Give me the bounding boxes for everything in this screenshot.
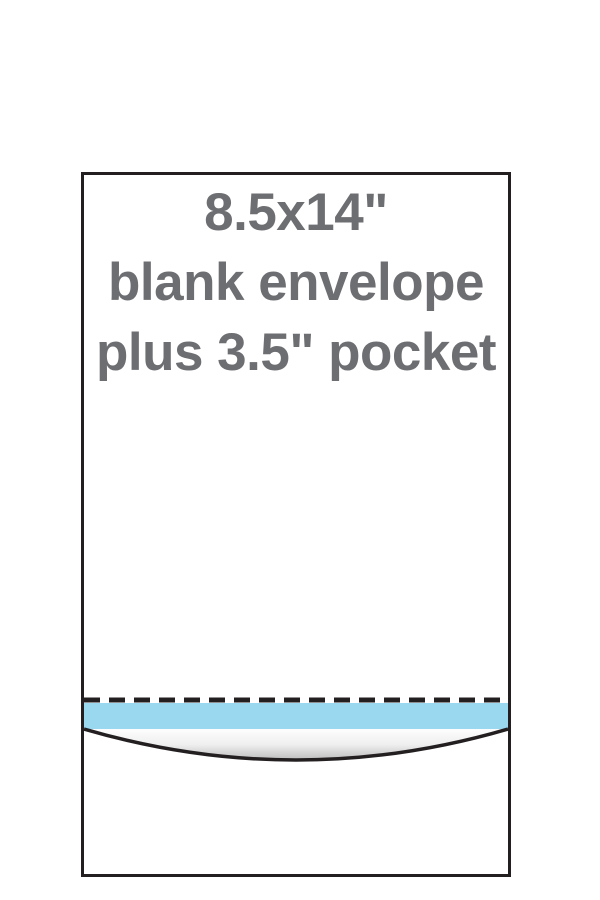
envelope-label: 8.5x14" blank envelope plus 3.5" pocket — [84, 178, 508, 388]
adhesive-strip — [84, 703, 508, 729]
label-line-pocket: plus 3.5" pocket — [84, 318, 508, 388]
diagram-canvas: 8.5x14" blank envelope plus 3.5" pocket — [0, 0, 600, 900]
envelope-outline: 8.5x14" blank envelope plus 3.5" pocket — [81, 172, 511, 877]
pocket-graphic — [84, 697, 508, 782]
label-line-type: blank envelope — [84, 248, 508, 318]
label-line-size: 8.5x14" — [84, 178, 508, 248]
